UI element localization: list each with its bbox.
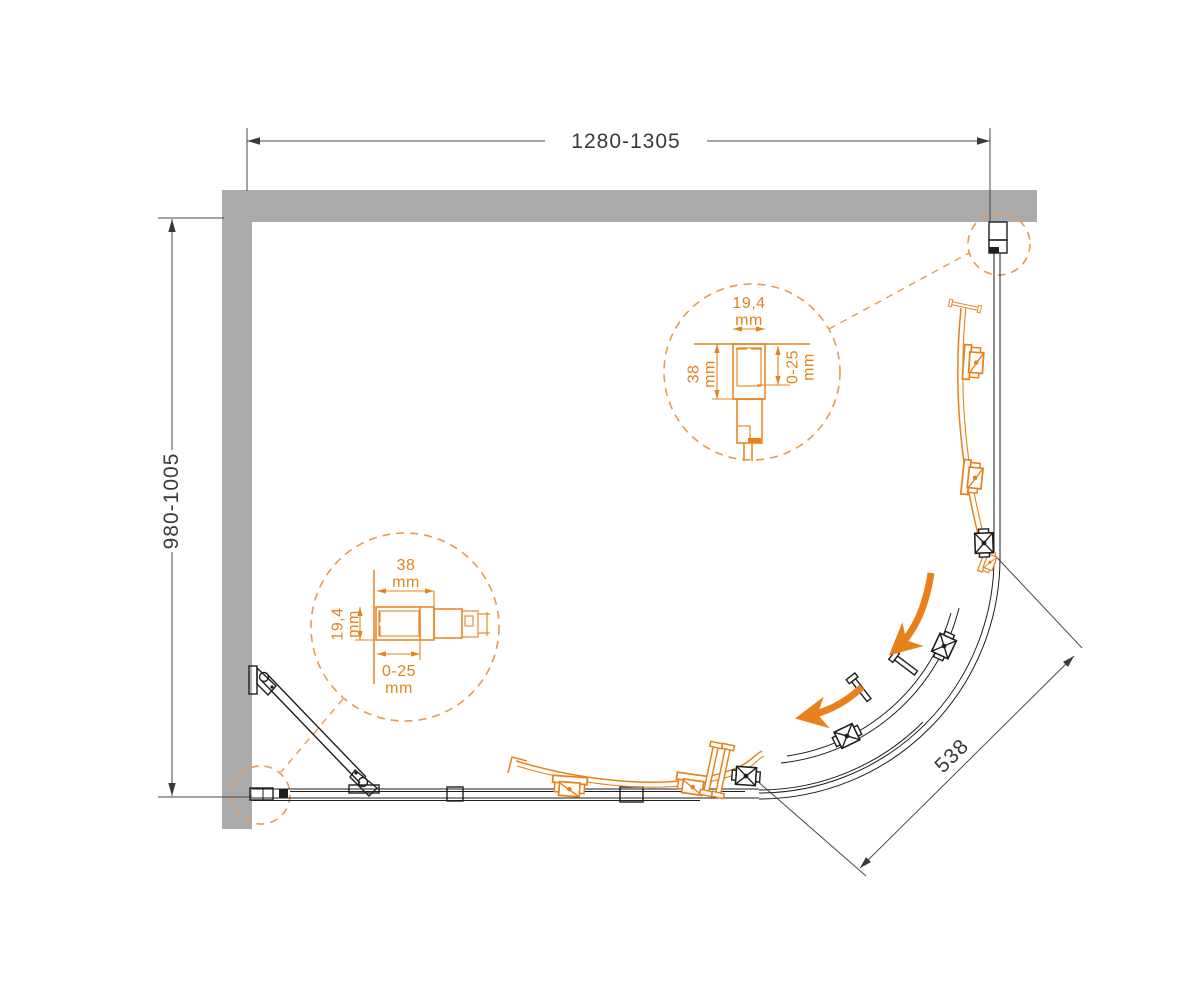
detail-bottom-width-unit: mm — [392, 574, 420, 591]
drawing-canvas: 1280-1305 980-1005 538 — [0, 0, 1181, 1004]
detail-top-range-unit: mm — [801, 353, 818, 381]
detail-bottom-width-value: 38 — [397, 557, 416, 574]
detail-bottom-range-unit: mm — [385, 680, 413, 697]
width-dimension-label: 1280-1305 — [571, 130, 680, 153]
detail-top-width-value: 19,4 — [732, 295, 765, 312]
depth-dimension-label: 980-1005 — [160, 453, 183, 550]
detail-top-depth-value: 38 — [686, 365, 703, 384]
top-wall — [222, 190, 1037, 222]
detail-top-range-value: 0-25 — [785, 350, 802, 384]
detail-top-depth-unit: mm — [702, 360, 719, 388]
detail-top-width-unit: mm — [735, 312, 763, 329]
left-wall — [222, 190, 252, 829]
roller — [731, 766, 760, 786]
detail-bottom-depth-value: 19,4 — [330, 607, 347, 640]
roller — [975, 529, 994, 558]
detail-bottom-range-value: 0-25 — [382, 663, 416, 680]
detail-bottom-depth-unit: mm — [346, 610, 363, 638]
enclosure-diagram: 1280-1305 980-1005 538 — [0, 0, 1181, 1004]
